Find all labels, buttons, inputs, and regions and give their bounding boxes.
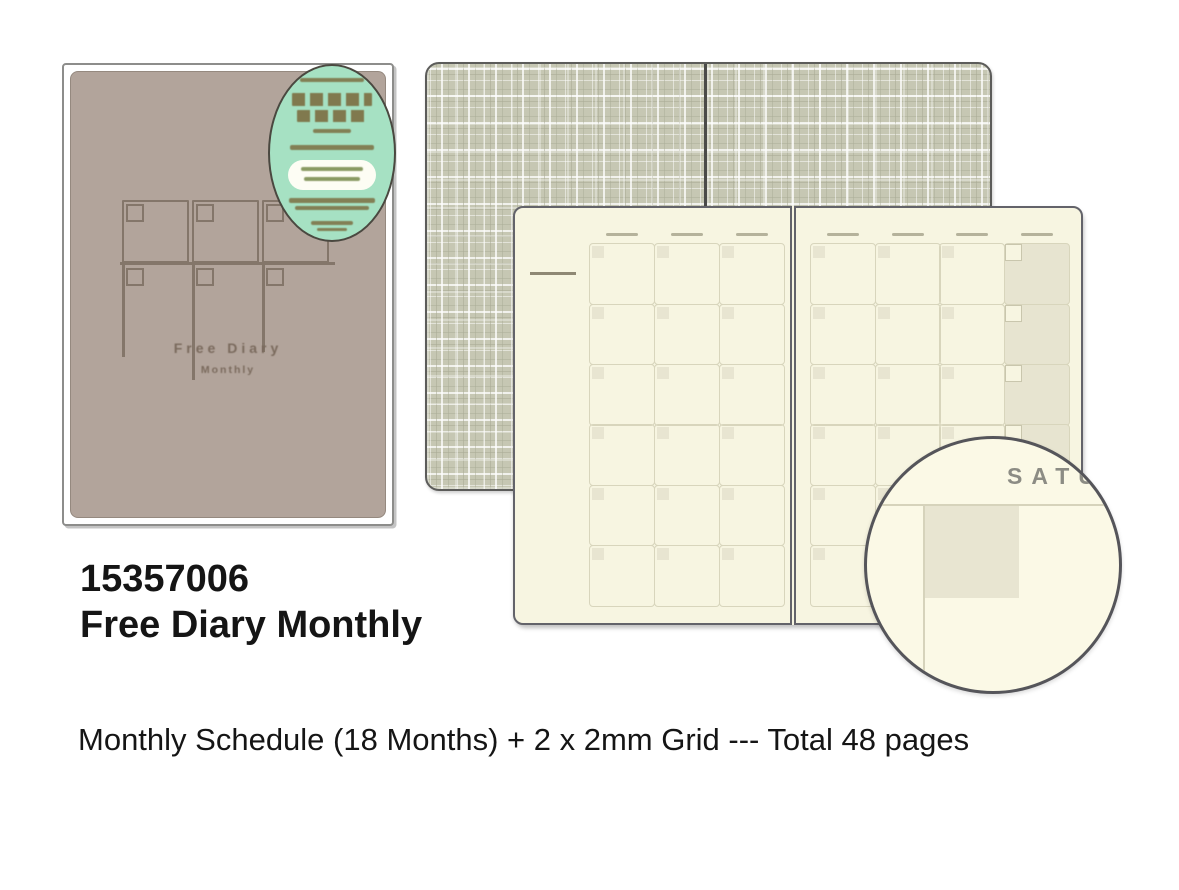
calendar-cell bbox=[939, 364, 1005, 426]
sticker-text-line bbox=[300, 78, 364, 82]
magnified-corner-square bbox=[925, 506, 1019, 598]
sticker-text-line bbox=[295, 206, 369, 210]
calendar-cell bbox=[654, 485, 720, 547]
calendar-cell bbox=[589, 485, 655, 547]
day-header-text-blur bbox=[671, 233, 703, 236]
calendar-cell bbox=[654, 364, 720, 426]
day-header-text-blur bbox=[956, 233, 988, 236]
calendar-cell bbox=[810, 364, 876, 426]
day-header-text-blur bbox=[1021, 233, 1053, 236]
day-header-label bbox=[876, 230, 941, 238]
sticker-text-line bbox=[290, 145, 374, 150]
calendar-cell bbox=[875, 364, 941, 426]
day-header-label bbox=[590, 230, 655, 238]
day-header-label bbox=[940, 230, 1005, 238]
calendar-cell bbox=[810, 304, 876, 366]
day-header-text-blur bbox=[736, 233, 768, 236]
sticker-text-line bbox=[317, 228, 347, 231]
sticker-pill-text-line bbox=[301, 167, 363, 171]
sticker-text-line bbox=[289, 198, 375, 203]
sticker-text-line bbox=[313, 129, 351, 133]
calendar-cell bbox=[654, 545, 720, 607]
calendar-cell bbox=[589, 545, 655, 607]
calendar-cell bbox=[719, 545, 785, 607]
cover-subtitle: Monthly bbox=[71, 364, 385, 376]
sticker-logo-line bbox=[292, 93, 372, 106]
magnifier-circle: SATU bbox=[864, 436, 1122, 694]
calendar-cell bbox=[654, 304, 720, 366]
calendar-cell bbox=[810, 424, 876, 486]
sticker-logo-line bbox=[297, 110, 367, 122]
cover-title: Free Diary bbox=[71, 340, 385, 356]
promo-sticker bbox=[268, 64, 396, 242]
calendar-cell bbox=[875, 304, 941, 366]
day-header-label bbox=[719, 230, 784, 238]
day-header-label bbox=[655, 230, 720, 238]
calendar-cell bbox=[589, 304, 655, 366]
day-header-text-blur bbox=[606, 233, 638, 236]
calendar-cell bbox=[654, 424, 720, 486]
calendar-grid-left bbox=[590, 244, 784, 606]
product-name: Free Diary Monthly bbox=[80, 604, 422, 647]
product-description: Monthly Schedule (18 Months) + 2 x 2mm G… bbox=[78, 722, 969, 758]
calendar-cell bbox=[719, 424, 785, 486]
month-title-blank-line bbox=[530, 272, 576, 275]
calendar-page-left bbox=[513, 206, 792, 625]
product-listing-image: Free Diary Monthly bbox=[0, 0, 1179, 890]
day-header-row bbox=[590, 230, 784, 238]
calendar-cell bbox=[719, 243, 785, 305]
calendar-cell-shaded bbox=[1004, 304, 1070, 366]
day-header-text-blur bbox=[827, 233, 859, 236]
calendar-cell bbox=[810, 243, 876, 305]
sticker-text-line bbox=[311, 221, 353, 225]
day-header-label bbox=[811, 230, 876, 238]
motif-column-line bbox=[262, 264, 265, 352]
calendar-cell bbox=[589, 243, 655, 305]
motif-corner-square bbox=[266, 268, 284, 286]
calendar-cell bbox=[654, 243, 720, 305]
day-header-text-blur bbox=[892, 233, 924, 236]
calendar-cell bbox=[939, 304, 1005, 366]
motif-corner-square bbox=[196, 204, 214, 222]
motif-column-line bbox=[192, 264, 195, 380]
calendar-cell bbox=[875, 243, 941, 305]
sticker-highlight-pill bbox=[288, 160, 376, 190]
motif-corner-square bbox=[126, 268, 144, 286]
product-number: 15357006 bbox=[80, 558, 249, 601]
day-header-row bbox=[811, 230, 1069, 238]
day-header-label bbox=[1005, 230, 1070, 238]
calendar-cell-shaded bbox=[1004, 243, 1070, 305]
calendar-cell bbox=[589, 424, 655, 486]
calendar-cell bbox=[589, 364, 655, 426]
calendar-cell bbox=[719, 304, 785, 366]
magnified-day-header-text: SATU bbox=[1007, 463, 1104, 490]
calendar-cell bbox=[719, 485, 785, 547]
motif-corner-square bbox=[126, 204, 144, 222]
calendar-cell-shaded bbox=[1004, 364, 1070, 426]
motif-corner-square bbox=[196, 268, 214, 286]
motif-row-line bbox=[120, 262, 335, 265]
calendar-cell bbox=[939, 243, 1005, 305]
calendar-cell bbox=[719, 364, 785, 426]
sticker-pill-text-line bbox=[304, 177, 360, 181]
